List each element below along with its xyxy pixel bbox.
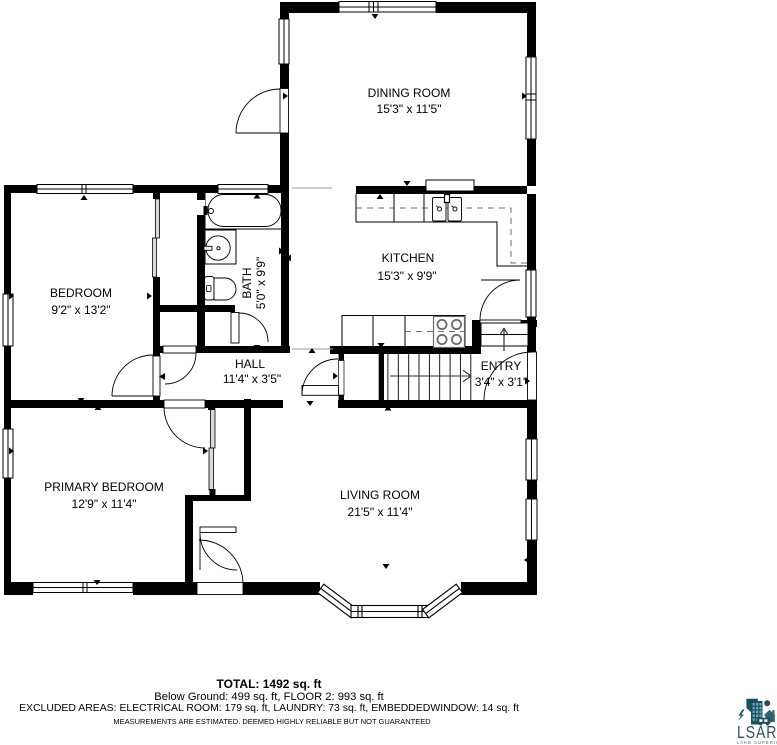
- svg-text:HALL: HALL: [235, 357, 265, 371]
- svg-text:PRIMARY BEDROOM: PRIMARY BEDROOM: [44, 480, 164, 494]
- svg-text:KITCHEN: KITCHEN: [382, 251, 435, 265]
- svg-text:TOTAL: 1492 sq. ft: TOTAL: 1492 sq. ft: [217, 677, 322, 691]
- svg-text:DINING ROOM: DINING ROOM: [368, 86, 451, 100]
- svg-text:Below Ground: 499 sq. ft, FLOO: Below Ground: 499 sq. ft, FLOOR 2: 993 s…: [154, 691, 384, 703]
- svg-text:9'2" x 13'2": 9'2" x 13'2": [51, 303, 110, 317]
- svg-text:15'3" x 9'9": 15'3" x 9'9": [377, 269, 436, 283]
- svg-text:12'9" x 11'4": 12'9" x 11'4": [72, 497, 137, 511]
- svg-text:BEDROOM: BEDROOM: [50, 286, 112, 300]
- svg-text:MEASUREMENTS ARE ESTIMATED. DE: MEASUREMENTS ARE ESTIMATED. DEEMED HIGHL…: [113, 717, 431, 726]
- svg-text:LAKE SUPERIOR ARE: LAKE SUPERIOR ARE: [737, 740, 777, 745]
- svg-text:ENTRY: ENTRY: [481, 359, 521, 373]
- svg-text:EXCLUDED AREAS: ELECTRICAL ROO: EXCLUDED AREAS: ELECTRICAL ROOM: 179 sq.…: [19, 703, 519, 714]
- svg-text:LIVING ROOM: LIVING ROOM: [340, 488, 420, 502]
- svg-text:BATH: BATH: [240, 267, 254, 298]
- svg-text:11'4" x 3'5": 11'4" x 3'5": [223, 372, 281, 386]
- svg-text:3'4" x 3'1": 3'4" x 3'1": [475, 375, 527, 389]
- svg-text:15'3" x 11'5": 15'3" x 11'5": [377, 102, 442, 116]
- svg-text:5'0" x 9'9": 5'0" x 9'9": [254, 257, 268, 309]
- svg-text:21'5" x 11'4": 21'5" x 11'4": [348, 505, 413, 519]
